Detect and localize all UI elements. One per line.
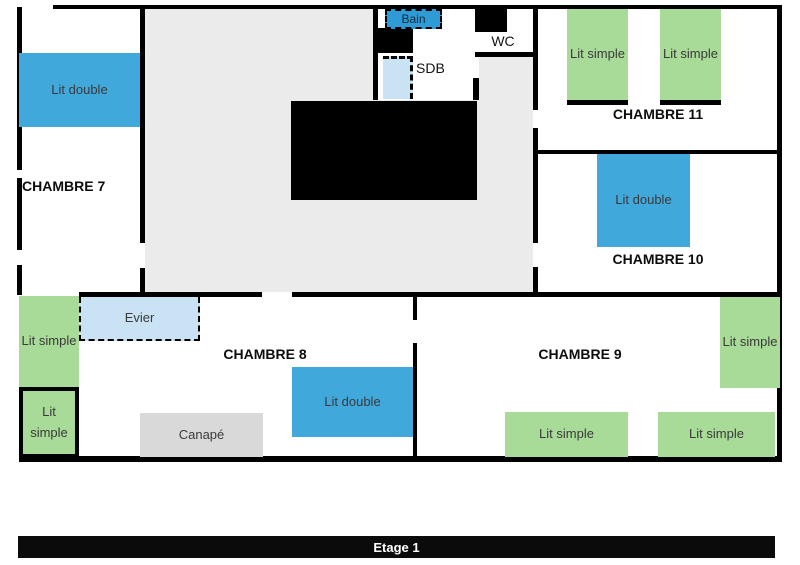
wall-bathroom-right [473,78,479,100]
chambre9-label: CHAMBRE 9 [480,346,680,362]
bed-simple-chambre8-upper: Lit simple [19,296,79,387]
sdb-label: SDB [416,60,445,76]
sink-label: Evier [125,308,155,328]
wall-chambre7-right-upper [140,7,145,243]
chambre11-label: CHAMBRE 11 [538,106,778,122]
bed-simple-chambre9-right: Lit simple [720,297,780,388]
bed-double-chambre8-label: Lit double [324,392,380,412]
chambre7-label: CHAMBRE 7 [22,178,105,194]
floor-title-label: Etage 1 [373,540,419,555]
wall-mid-horizontal-right [292,292,780,297]
bed-simple-chambre11-left-label: Lit simple [570,44,625,64]
bed-simple-chambre11-right-label: Lit simple [663,44,718,64]
wall-block-wc [475,7,507,32]
bed-double-chambre7: Lit double [19,53,140,127]
bed-simple-chambre8-upper-label: Lit simple [22,331,77,351]
wall-chambre8-chambre9-lower [413,343,417,462]
bed-simple-chambre9-bottom-left: Lit simple [505,412,628,457]
sofa-label: Canapé [179,425,225,445]
floor-plan: Lit double CHAMBRE 7 Bain SDB WC Lit sim… [0,0,800,565]
wall-chambre8-chambre9-upper [413,297,417,320]
wall-hall-right-upper [533,7,538,110]
wall-right-outer [777,7,782,462]
wc-room: WC [475,30,531,52]
bed-simple-chambre8-lower-label: Lit simple [23,402,75,442]
bed-simple-chambre11-left: Lit simple [567,9,628,105]
wall-hall-right-middle [533,128,538,243]
wc-label: WC [491,33,514,49]
wall-wc-bottom [475,52,535,57]
sink: Evier [79,297,200,341]
chambre10-label: CHAMBRE 10 [538,251,778,267]
wall-block-bathroom [378,28,413,53]
bed-simple-chambre9-bottom-left-label: Lit simple [539,424,594,444]
bed-double-chambre7-label: Lit double [51,80,107,100]
floor-title-bar: Etage 1 [18,536,775,558]
wall-bathroom-left [373,9,378,100]
bathtub: Bain [385,9,442,29]
bathtub-label: Bain [401,10,425,29]
bed-double-chambre10: Lit double [597,154,690,247]
chambre8-label: CHAMBRE 8 [180,346,350,362]
bed-simple-chambre11-right: Lit simple [660,9,721,105]
wall-chambre7-right-lower [140,268,145,295]
shower [383,56,413,99]
stairwell-block [291,101,477,200]
bed-double-chambre10-label: Lit double [615,190,671,210]
bed-simple-chambre9-bottom-right-label: Lit simple [689,424,744,444]
bed-simple-chambre8-lower: Lit simple [19,387,79,458]
bed-double-chambre8: Lit double [292,367,413,437]
bed-simple-chambre9-bottom-right: Lit simple [658,412,775,457]
bed-simple-chambre9-right-label: Lit simple [723,332,778,352]
sofa: Canapé [140,413,263,457]
wall-left-lower [17,265,22,295]
